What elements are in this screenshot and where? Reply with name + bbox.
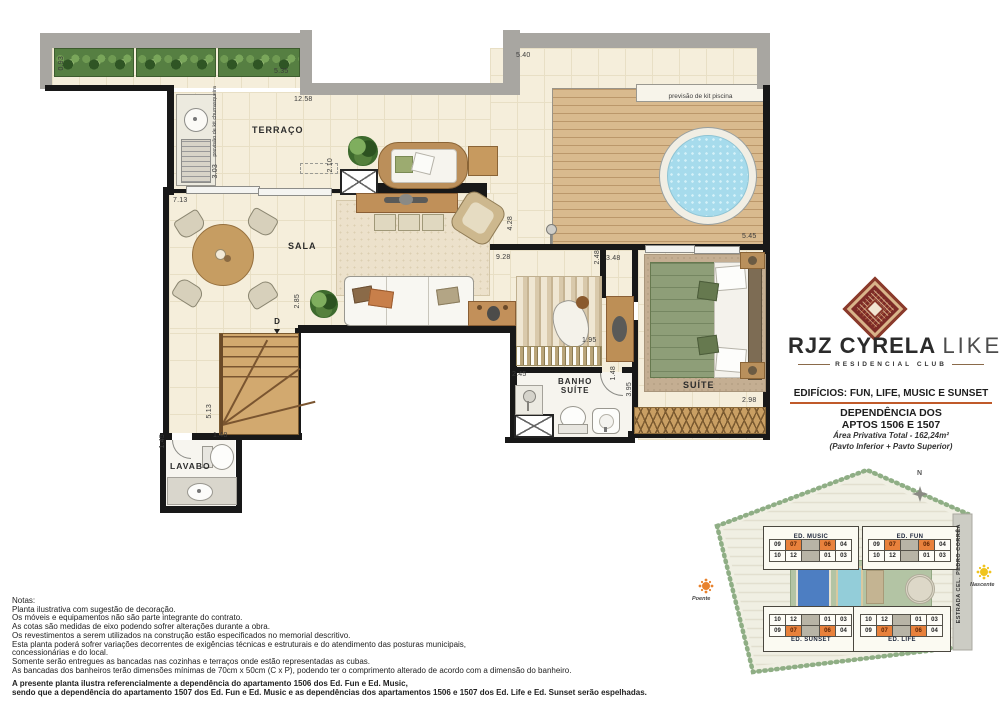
dimension-label: 1.48 xyxy=(213,432,227,439)
dependencia-line1: DEPENDÊNCIA DOS xyxy=(790,407,992,419)
nightstand xyxy=(740,252,765,269)
building-0: ED. MUSIC0907060410120103 xyxy=(763,526,859,570)
side-table xyxy=(468,146,498,176)
sliding-door xyxy=(694,246,740,254)
duct-shaft xyxy=(514,414,554,438)
brand-title: RJZ CYRELA LIKE xyxy=(788,333,994,359)
dimension-label: 1.45 xyxy=(159,434,166,448)
brand-subtitle: RESIDENCIAL CLUB xyxy=(798,361,984,368)
churrasqueira-label: previsão de kit churrasqueira xyxy=(212,86,218,157)
area-line: Área Privativa Total - 162,24m² xyxy=(790,431,992,440)
notes-block: Notas: Planta ilustrativa com sugestão d… xyxy=(12,597,757,698)
room-label-banho-suite: BANHO SUÍTE xyxy=(558,377,592,395)
wet-bar xyxy=(468,301,516,326)
room-label-suite: SUÍTE xyxy=(683,380,715,390)
unit-cell: 06 xyxy=(910,625,927,637)
notes-bold: A presente planta ilustra referencialmen… xyxy=(12,680,757,697)
dimension-label: 5.40 xyxy=(516,52,530,59)
note-bold-line: sendo que a dependência do apartamento 1… xyxy=(12,689,757,698)
edificios-line: EDIFÍCIOS: FUN, LIFE, MUSIC E SUNSET xyxy=(790,388,992,399)
sliding-door xyxy=(645,245,695,253)
dimension-label: 0.93 xyxy=(58,56,65,70)
stairs xyxy=(219,333,299,435)
building-1: ED. FUN0907060410120103 xyxy=(862,526,958,570)
dimension-label: 3.95 xyxy=(626,382,633,396)
sliding-door xyxy=(186,186,260,194)
sun-west-icon xyxy=(702,582,710,590)
toilet-tank xyxy=(558,424,588,434)
shower xyxy=(515,385,543,415)
dining-table xyxy=(192,224,254,286)
unit-cell: 07 xyxy=(785,625,802,637)
churrasqueira-counter xyxy=(176,94,216,186)
unit-cell: 04 xyxy=(835,625,852,637)
tv-base xyxy=(399,194,413,205)
building-3: ED. LIFE1012010309070604 xyxy=(853,606,951,652)
lavabo-door-gap xyxy=(172,433,192,440)
unit-cell: 07 xyxy=(876,625,893,637)
dimension-label: 1.95 xyxy=(582,337,596,344)
unit-cell: 09 xyxy=(769,625,786,637)
brand-subtitle-text: RESIDENCIAL CLUB xyxy=(835,361,947,368)
unit-cell: 04 xyxy=(926,625,943,637)
dimension-label: 5.35 xyxy=(274,68,288,75)
brand-title-light: LIKE xyxy=(942,333,1000,358)
ottoman xyxy=(398,214,420,231)
unit-cell: 03 xyxy=(835,550,852,562)
notes-lines: Planta ilustrativa com sugestão de decor… xyxy=(12,606,757,676)
sofa xyxy=(344,276,474,326)
outdoor-shower-icon xyxy=(546,224,560,246)
room-label-lavabo: LAVABO xyxy=(170,461,211,471)
piscina-label: previsão de kit piscina xyxy=(669,93,733,100)
lavabo-counter xyxy=(167,477,237,505)
nightstand xyxy=(740,362,765,379)
piscina-band: previsão de kit piscina xyxy=(636,84,765,102)
site-plan: ED. MUSIC0907060410120103 ED. FUN0907060… xyxy=(690,462,1000,707)
note-line: Esta planta poderá sofrer variações deco… xyxy=(12,641,757,650)
unit-cell: 01 xyxy=(918,550,935,562)
dependencia-line2: APTOS 1506 E 1507 xyxy=(790,419,992,431)
pool-water xyxy=(667,135,749,217)
stair-core xyxy=(892,625,911,637)
building-grid: 0907060410120103 xyxy=(869,540,951,562)
sun-east-label: Nascente xyxy=(970,582,994,588)
dimension-label: 4.28 xyxy=(507,216,514,230)
parapet-top-right xyxy=(503,33,770,48)
unit-cell: 10 xyxy=(868,550,885,562)
pavimentos-line: (Pavto Inferior + Pavto Superior) xyxy=(790,442,992,451)
plant xyxy=(310,290,338,318)
dimension-label: 3.03 xyxy=(212,164,219,178)
unit-cell: 09 xyxy=(860,625,877,637)
unit-cell: 06 xyxy=(819,625,836,637)
building-grid: 0907060410120103 xyxy=(770,540,852,562)
accent-underline xyxy=(790,402,992,404)
sun-west-label: Poente xyxy=(692,596,710,602)
ottoman xyxy=(422,214,444,231)
compass-label: N xyxy=(917,470,922,477)
plant xyxy=(348,136,378,166)
room-label-sala: SALA xyxy=(288,241,317,251)
building-2: ED. SUNSET1012010309070604 xyxy=(763,606,859,652)
dimension-label: 5.13 xyxy=(206,404,213,418)
dimension-label: 5.45 xyxy=(742,233,756,240)
lap-pool xyxy=(796,566,831,608)
parapet-left xyxy=(40,33,52,89)
unit-cell: 12 xyxy=(884,550,901,562)
dimension-label: 2.98 xyxy=(742,397,756,404)
brand-title-main: RJZ CYRELA xyxy=(788,333,935,358)
sport-court xyxy=(866,570,884,604)
round-plaza xyxy=(905,574,935,604)
building-name: ED. LIFE xyxy=(888,637,916,643)
building-grid: 1012010309070604 xyxy=(861,615,943,637)
dimension-label: 7.13 xyxy=(173,197,187,204)
dimension-label: 12.58 xyxy=(294,96,313,103)
toilet-bowl xyxy=(210,444,234,470)
room-label-terraco: TERRAÇO xyxy=(252,125,304,135)
parapet-right xyxy=(757,33,770,89)
note-line: As bancadas dos banheiros terão dimensõe… xyxy=(12,667,757,676)
unit-cell: 12 xyxy=(785,550,802,562)
pedestal-sink xyxy=(592,408,620,434)
duct-shaft xyxy=(340,169,378,195)
building-grid: 1012010309070604 xyxy=(770,615,852,637)
dimension-label: 2.10 xyxy=(327,158,334,172)
dimension-label: 2.48 xyxy=(594,250,601,264)
parapet-top-left xyxy=(40,33,312,48)
planter-box xyxy=(136,48,216,77)
dimension-label: 1.48 xyxy=(610,366,617,380)
decor-ball xyxy=(576,296,589,309)
planter-box xyxy=(54,48,134,77)
leisure-pool xyxy=(836,566,863,610)
dimension-label: 9.28 xyxy=(496,254,510,261)
stair-core xyxy=(801,625,820,637)
vanity-counter xyxy=(606,296,634,362)
dimension-label: 2.85 xyxy=(294,294,301,308)
stair-core xyxy=(801,550,820,562)
unit-cell: 03 xyxy=(934,550,951,562)
dimension-label: 3.48 xyxy=(606,255,620,262)
building-name: ED. SUNSET xyxy=(791,637,831,643)
bed xyxy=(650,260,760,378)
suite-bench xyxy=(634,407,766,434)
ottoman xyxy=(374,214,396,231)
sliding-door xyxy=(258,188,332,196)
parapet-notch-bottom xyxy=(300,83,520,95)
closet-bench xyxy=(516,346,602,366)
unit-cell: 01 xyxy=(819,550,836,562)
stairs-direction-marker: D xyxy=(270,311,284,334)
road-label: ESTRADA CEL. PEDRO CORRÊA xyxy=(956,524,962,623)
stair-core xyxy=(900,550,919,562)
dimension-label: 2.45 xyxy=(512,371,526,378)
daybed xyxy=(378,142,468,189)
unit-cell: 10 xyxy=(769,550,786,562)
sun-east-icon xyxy=(980,568,988,576)
